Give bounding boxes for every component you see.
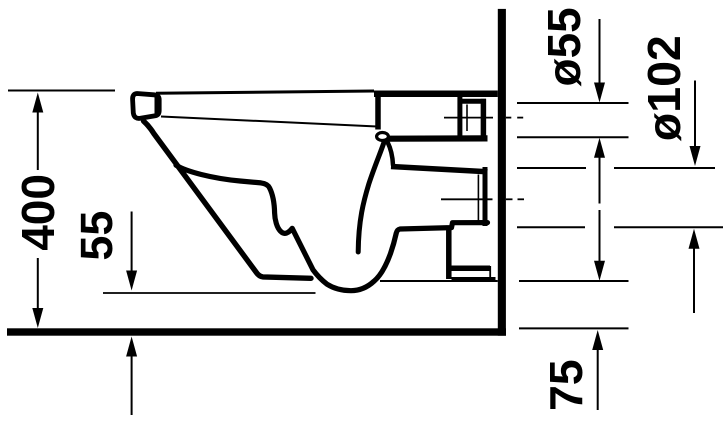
svg-text:ø55: ø55: [538, 7, 590, 86]
svg-text:75: 75: [540, 359, 592, 411]
svg-text:55: 55: [71, 211, 122, 261]
svg-text:ø102: ø102: [638, 35, 690, 141]
svg-text:400: 400: [12, 174, 64, 251]
